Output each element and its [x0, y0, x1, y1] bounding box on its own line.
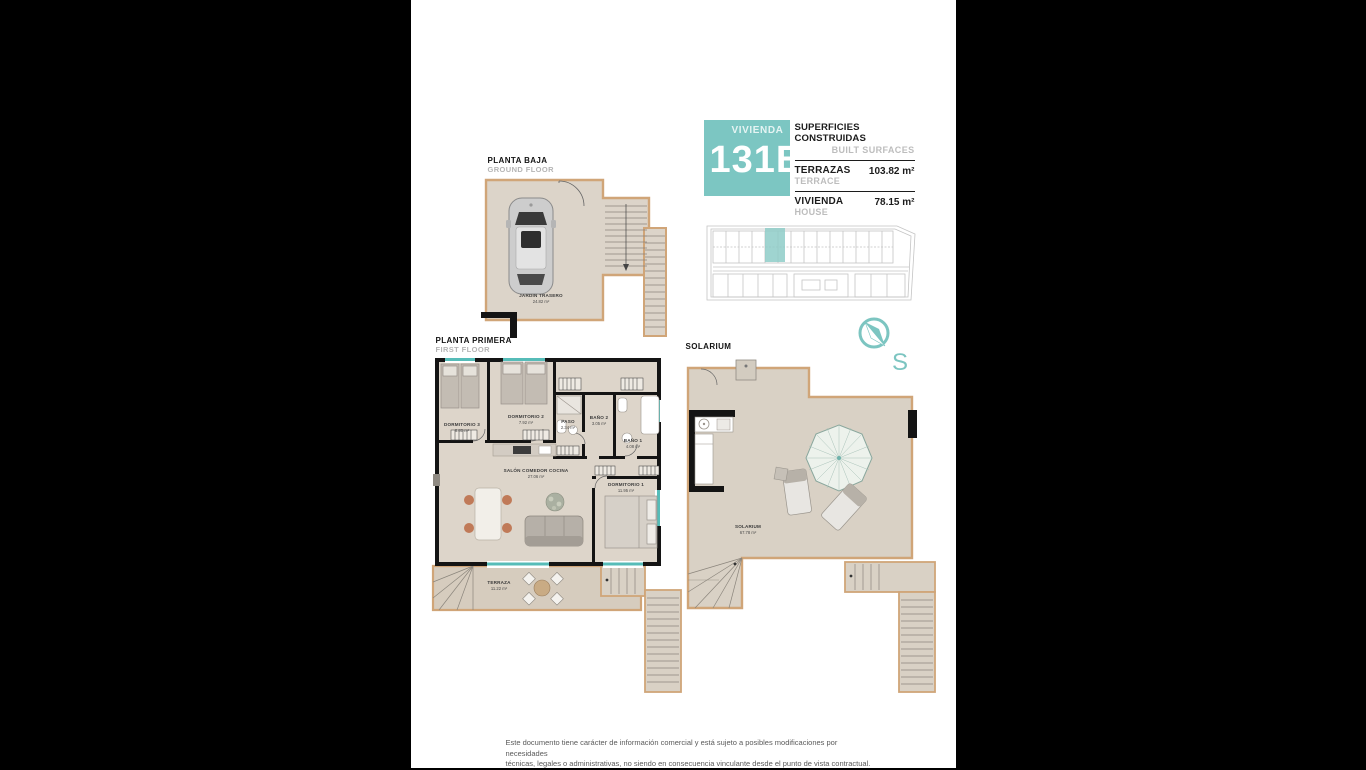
room-label-dorm1: DORMITORIO 1	[607, 482, 643, 487]
room-label-solarium: SOLARIUM	[734, 524, 760, 529]
room-area-salon: 27.06 m²	[527, 474, 544, 479]
highlighted-unit	[765, 228, 785, 262]
room-area-dorm1: 11.95 m²	[617, 488, 634, 493]
built-surfaces-table: SUPERFICIES CONSTRUIDAS BUILT SURFACES T…	[795, 122, 915, 217]
terrazas-value: 103.82 m²	[869, 165, 915, 177]
terrazas-label-en: TERRACE	[795, 176, 851, 186]
site-key-plan	[699, 214, 931, 314]
first-floor-plan: DORMITORIO 3 8.80 m² DORMITORIO 2 7.92 m…	[429, 350, 691, 698]
solarium-plan: SOLARIUM 67.78 m²	[679, 352, 951, 697]
unit-word: VIVIENDA	[710, 125, 784, 136]
room-label-jardin: JARDIN TRASERO	[519, 293, 563, 298]
room-label-terraza: TERRAZA	[487, 580, 511, 585]
room-area-solarium: 67.78 m²	[739, 530, 756, 535]
room-area-jardin: 24.82 m²	[532, 299, 549, 304]
room-label-dorm3: DORMITORIO 3	[443, 422, 479, 427]
room-area-dorm2: 7.92 m²	[518, 420, 533, 425]
room-area-paso: 2.34 m²	[560, 425, 575, 430]
surfaces-title-es: SUPERFICIES CONSTRUIDAS	[795, 122, 915, 144]
divider	[795, 191, 915, 192]
surfaces-title-en: BUILT SURFACES	[795, 145, 915, 155]
disclaimer-line1: Este documento tiene carácter de informa…	[506, 738, 878, 759]
room-area-dorm3: 8.80 m²	[454, 428, 469, 433]
room-label-paso: PASO	[561, 419, 575, 424]
parasol-icon	[806, 425, 872, 491]
chimney	[736, 360, 756, 380]
room-area-bano1: 4.08 m²	[625, 444, 640, 449]
surface-row-terrazas: TERRAZAS TERRACE 103.82 m²	[795, 165, 915, 186]
plant-icon	[546, 493, 564, 511]
room-area-terraza: 11.22 m²	[490, 586, 507, 591]
meter-box	[433, 474, 440, 486]
terrazas-label-es: TERRAZAS	[795, 165, 851, 176]
vivienda-label-es: VIVIENDA	[795, 196, 844, 207]
legal-disclaimer: Este documento tiene carácter de informa…	[506, 738, 878, 770]
kitchen-counter	[493, 444, 556, 456]
room-label-salon: SALÓN COMEDOR COCINA	[503, 466, 568, 473]
ground-floor-plan: JARDIN TRASERO 24.82 m²	[481, 170, 681, 338]
unit-id-box: VIVIENDA 131B	[704, 120, 790, 196]
sofa-icon	[525, 516, 583, 546]
first-floor-title: PLANTA PRIMERA	[436, 336, 512, 345]
room-label-dorm2: DORMITORIO 2	[507, 414, 543, 419]
car-icon	[506, 198, 556, 294]
wall-opening	[908, 410, 917, 438]
room-label-bano1: BAÑO 1	[623, 437, 642, 443]
ground-floor-title: PLANTA BAJA	[488, 156, 554, 165]
room-label-bano2: BAÑO 2	[589, 414, 608, 420]
room-area-bano2: 3.05 m²	[591, 421, 606, 426]
solarium-title: SOLARIUM	[686, 342, 732, 351]
solarium-heading: SOLARIUM	[686, 342, 732, 351]
dorm1-bed	[605, 496, 657, 548]
unit-number: 131B	[710, 141, 784, 179]
divider	[795, 160, 915, 161]
vivienda-value: 78.15 m²	[874, 196, 914, 208]
plan-sheet-page: VIVIENDA 131B SUPERFICIES CONSTRUIDAS BU…	[411, 0, 956, 768]
